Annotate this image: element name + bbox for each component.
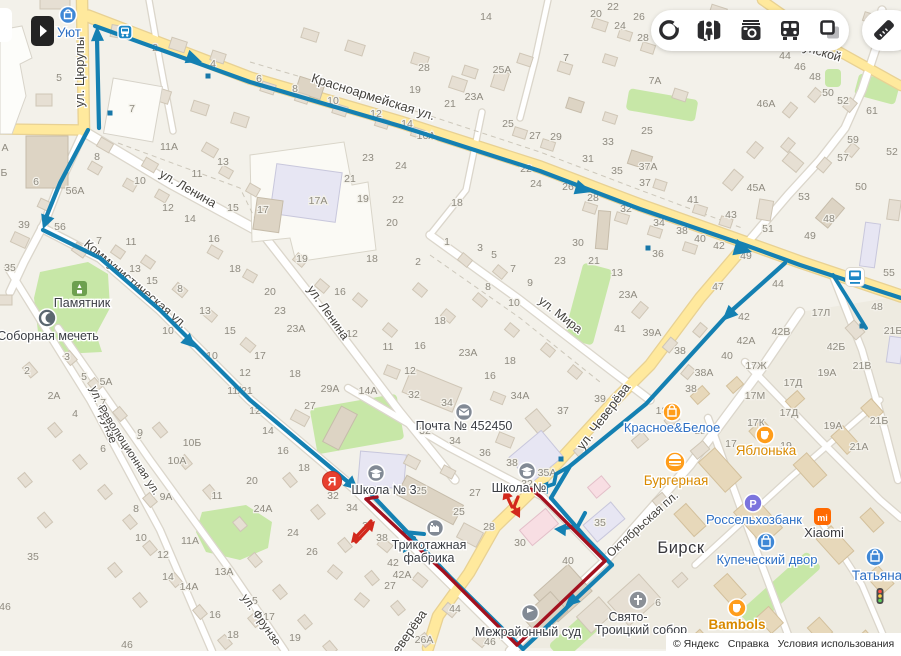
svg-text:17Л: 17Л [812,307,831,319]
svg-text:27: 27 [384,580,396,592]
svg-text:42: 42 [713,240,725,252]
svg-text:Xiaomi: Xiaomi [804,525,844,540]
svg-text:36: 36 [652,248,664,260]
svg-text:Купеческий двор: Купеческий двор [716,552,817,567]
svg-text:41: 41 [687,194,699,206]
svg-text:46: 46 [794,61,806,73]
svg-text:9: 9 [137,427,143,439]
svg-text:7: 7 [129,103,135,115]
svg-text:1: 1 [444,236,450,248]
svg-text:35: 35 [611,165,623,177]
svg-text:12: 12 [157,549,169,561]
svg-text:6: 6 [33,176,39,188]
svg-text:2: 2 [415,256,421,268]
svg-text:40: 40 [721,350,733,362]
svg-text:28: 28 [637,32,649,44]
svg-text:44: 44 [772,278,784,290]
svg-text:48: 48 [871,301,883,313]
svg-text:16: 16 [277,445,289,457]
svg-text:14: 14 [262,425,274,437]
svg-text:4: 4 [72,408,78,420]
svg-text:16: 16 [414,340,426,352]
svg-text:32: 32 [408,389,420,401]
svg-text:21А: 21А [850,441,869,453]
svg-text:27: 27 [304,400,316,412]
svg-text:35: 35 [27,551,39,563]
svg-text:21: 21 [588,255,600,267]
svg-text:14А: 14А [359,385,378,397]
svg-text:3: 3 [477,242,483,254]
svg-text:26: 26 [306,546,318,558]
svg-text:31: 31 [582,153,594,165]
svg-text:52: 52 [837,95,849,107]
svg-text:25: 25 [453,506,465,518]
svg-text:34: 34 [449,435,461,447]
svg-text:44: 44 [779,50,791,62]
svg-text:28: 28 [418,62,430,74]
svg-text:Школа № 3: Школа № 3 [351,483,416,497]
svg-text:36: 36 [479,447,491,459]
svg-text:Бургерная: Бургерная [644,473,709,488]
svg-text:mi: mi [817,513,828,523]
svg-text:8: 8 [133,503,139,515]
svg-text:Р: Р [749,499,756,511]
svg-text:18: 18 [289,368,301,380]
svg-text:13: 13 [611,267,623,279]
svg-text:49: 49 [804,230,816,242]
svg-text:Татьяна: Татьяна [852,568,901,583]
svg-text:20: 20 [590,8,602,20]
svg-text:12: 12 [239,367,251,379]
svg-text:Россельхозбанк: Россельхозбанк [706,512,802,527]
svg-text:20: 20 [386,217,398,229]
svg-text:19: 19 [409,84,421,96]
svg-text:33: 33 [602,136,614,148]
svg-text:6: 6 [655,597,661,609]
svg-text:47: 47 [712,281,724,293]
svg-text:11А: 11А [160,141,178,153]
svg-text:14: 14 [184,213,196,225]
svg-text:38А: 38А [695,367,714,379]
svg-text:10: 10 [135,532,147,544]
svg-text:15: 15 [224,325,236,337]
svg-text:17А: 17А [309,195,328,207]
svg-text:23: 23 [274,305,286,317]
svg-text:Свято-: Свято- [609,610,648,624]
svg-text:10А: 10А [168,455,187,467]
svg-text:17: 17 [254,350,266,362]
svg-text:© Яндекс Справка Условия и: © Яндекс Справка Условия использования [673,638,894,650]
svg-text:Bambols: Bambols [708,617,765,632]
svg-text:11: 11 [383,341,394,353]
svg-text:25: 25 [415,485,427,497]
svg-text:42Б: 42Б [827,341,846,353]
svg-text:8: 8 [94,151,100,163]
svg-text:25: 25 [502,118,514,130]
svg-text:34: 34 [346,502,358,514]
svg-text:26А: 26А [415,634,434,646]
svg-text:Яблонька: Яблонька [736,443,797,458]
svg-text:38: 38 [506,457,518,469]
svg-text:19: 19 [289,632,301,644]
svg-text:37: 37 [557,405,569,417]
svg-text:24: 24 [395,160,407,172]
svg-text:16: 16 [484,370,496,382]
svg-text:21: 21 [344,173,356,185]
svg-text:23А: 23А [619,289,638,301]
svg-text:48: 48 [809,71,821,83]
svg-text:5: 5 [56,72,62,84]
svg-text:Красное&Белое: Красное&Белое [624,420,720,435]
svg-text:Соборная мечеть: Соборная мечеть [0,329,99,343]
svg-text:46: 46 [0,601,11,613]
svg-text:37А: 37А [639,161,658,173]
svg-text:10: 10 [508,297,520,309]
svg-text:50: 50 [855,181,867,193]
svg-text:37: 37 [639,177,651,189]
svg-text:30: 30 [514,537,526,549]
svg-text:24: 24 [530,178,542,190]
svg-text:2А: 2А [48,390,61,402]
svg-text:Я: Я [328,475,337,489]
svg-text:19: 19 [357,193,369,205]
svg-text:51: 51 [762,223,774,235]
svg-text:28: 28 [483,521,495,533]
svg-text:7: 7 [563,52,569,64]
svg-text:18: 18 [366,253,378,265]
svg-text:фабрика: фабрика [403,551,454,565]
svg-text:Трикотажная: Трикотажная [392,538,467,552]
svg-text:ул. Цюрупы: ул. Цюрупы [72,37,87,107]
svg-text:2: 2 [24,365,30,377]
svg-text:23А: 23А [287,323,306,335]
svg-text:17Ж: 17Ж [745,360,767,372]
svg-text:27: 27 [469,487,481,499]
svg-text:9А: 9А [160,491,173,503]
svg-text:16: 16 [334,286,346,298]
svg-text:Б: Б [1,167,8,179]
svg-text:59: 59 [847,134,859,146]
svg-text:38: 38 [674,345,686,357]
svg-text:Школа №: Школа № [492,481,547,495]
svg-text:16: 16 [209,609,221,621]
svg-text:6: 6 [100,443,106,455]
svg-text:40: 40 [562,555,574,567]
svg-text:19А: 19А [818,367,837,379]
svg-text:20: 20 [264,286,276,298]
svg-text:38: 38 [685,383,697,395]
svg-text:29: 29 [550,131,562,143]
svg-text:27: 27 [529,130,541,142]
svg-text:48: 48 [823,213,835,225]
svg-text:45А: 45А [747,182,766,194]
svg-text:12: 12 [404,365,416,377]
svg-text:14А: 14А [180,581,199,593]
svg-text:17Д: 17Д [784,377,803,389]
svg-text:32: 32 [327,490,339,502]
svg-text:Уют: Уют [57,25,81,40]
svg-text:46: 46 [121,639,133,651]
svg-text:35: 35 [4,262,16,274]
svg-text:Памятник: Памятник [54,296,111,310]
svg-text:29А: 29А [321,383,340,395]
svg-text:61: 61 [866,105,878,117]
svg-text:42: 42 [738,311,750,323]
svg-text:12: 12 [162,202,174,214]
svg-text:18: 18 [451,197,463,209]
svg-text:Межрайонный суд: Межрайонный суд [475,625,582,639]
svg-text:9: 9 [527,277,533,289]
svg-text:21: 21 [444,98,456,110]
svg-text:13: 13 [199,305,211,317]
svg-text:24А: 24А [254,503,273,515]
svg-text:38: 38 [376,532,388,544]
svg-text:40: 40 [694,233,706,245]
svg-text:3: 3 [64,351,70,363]
svg-text:57: 57 [837,152,849,164]
svg-text:20: 20 [246,475,258,487]
svg-text:23А: 23А [465,91,484,103]
svg-text:19А: 19А [824,420,843,432]
svg-text:53: 53 [798,191,810,203]
svg-text:18: 18 [227,629,239,641]
svg-text:21Б: 21Б [884,325,901,337]
svg-text:11: 11 [192,168,203,180]
svg-text:24: 24 [614,20,626,32]
svg-text:16: 16 [208,233,220,245]
svg-text:10: 10 [162,325,174,337]
svg-text:18: 18 [434,315,446,327]
svg-text:46А: 46А [757,98,776,110]
svg-text:43: 43 [725,209,737,221]
svg-text:21Б: 21Б [870,415,889,427]
svg-text:7: 7 [510,263,516,275]
svg-text:56А: 56А [66,185,85,197]
svg-text:10Б: 10Б [183,437,202,449]
svg-text:26: 26 [633,11,645,23]
svg-text:Бирск: Бирск [657,539,704,557]
svg-text:21В: 21В [853,360,872,372]
svg-text:22: 22 [392,194,404,206]
svg-text:55: 55 [883,267,895,279]
svg-text:17Д: 17Д [780,407,799,419]
svg-text:24: 24 [287,527,299,539]
svg-text:5: 5 [491,249,497,261]
svg-text:35: 35 [594,517,606,529]
svg-text:25А: 25А [493,64,512,76]
svg-text:18: 18 [504,355,516,367]
svg-text:50: 50 [822,87,834,99]
svg-text:23: 23 [362,152,374,164]
svg-text:11: 11 [212,490,223,502]
svg-text:17: 17 [257,204,269,216]
svg-text:15: 15 [227,202,239,214]
svg-text:Почта № 452450: Почта № 452450 [416,419,513,433]
svg-text:14: 14 [162,571,174,583]
svg-text:18: 18 [298,462,310,474]
svg-text:42: 42 [387,557,399,569]
svg-text:23: 23 [554,255,566,267]
svg-text:25: 25 [641,125,653,137]
svg-text:34А: 34А [511,390,530,402]
svg-text:18: 18 [229,263,241,275]
svg-text:39А: 39А [643,327,662,339]
svg-text:22: 22 [607,1,619,13]
svg-text:42В: 42В [772,326,791,338]
svg-text:44: 44 [449,603,461,615]
svg-text:19: 19 [296,253,308,265]
svg-text:10: 10 [134,175,146,187]
svg-text:23А: 23А [459,347,478,359]
svg-text:17М: 17М [745,390,765,402]
svg-text:14: 14 [480,11,492,23]
svg-text:34: 34 [441,397,453,409]
svg-text:8: 8 [485,281,491,293]
svg-text:7А: 7А [649,75,662,87]
svg-text:39: 39 [18,219,30,231]
svg-text:8: 8 [177,283,183,295]
svg-text:13: 13 [217,156,229,168]
svg-text:5: 5 [81,371,87,383]
svg-text:11: 11 [126,236,137,248]
svg-text:А: А [1,142,8,154]
svg-text:52: 52 [886,146,898,158]
svg-text:13А: 13А [215,566,234,578]
svg-text:41: 41 [614,323,626,335]
svg-text:56: 56 [54,221,66,233]
svg-text:42А: 42А [737,335,756,347]
svg-text:11А: 11А [181,535,199,547]
svg-text:30: 30 [572,237,584,249]
